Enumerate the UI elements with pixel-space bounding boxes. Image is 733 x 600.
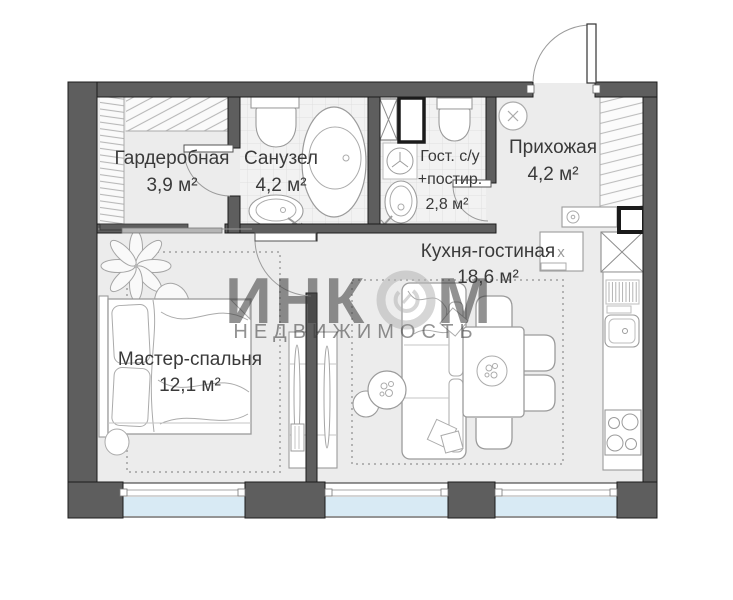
wall-bedroom-north (225, 224, 496, 233)
bathroom-label: Санузел (244, 148, 318, 169)
utility-shaft (399, 98, 424, 142)
dining-chair (524, 335, 555, 371)
stove (605, 410, 641, 455)
vent-shaft (380, 99, 397, 140)
hallway-closet-hatch (600, 97, 643, 207)
bathroom-area: 4,2 м² (255, 175, 306, 196)
entrance-door (527, 24, 600, 93)
entrance-threshold (533, 83, 595, 97)
wall-right (643, 97, 657, 518)
floor-plan: ИНК М НЕДВИЖИМОСТЬ Гардеробная 3,9 м² Са… (0, 0, 733, 600)
master-bedroom-area: 12,1 м² (159, 375, 221, 396)
hallway-cabinet (562, 207, 617, 227)
hallway-label: Прихожая (509, 137, 597, 158)
window-glass (97, 497, 643, 516)
wall-guestwc-hallway (486, 97, 496, 183)
window-pier (68, 482, 123, 518)
hallway-area: 4,2 м² (527, 164, 578, 185)
wall-bathroom-shaft (368, 97, 380, 224)
washing-machine (383, 143, 417, 179)
watermark: ИНК М НЕДВИЖИМОСТЬ (225, 264, 494, 343)
master-bedroom-label: Мастер-спальня (118, 349, 262, 370)
wall-top-left (68, 82, 533, 97)
wall-left (68, 82, 97, 518)
window-pier (448, 482, 495, 518)
wardrobe-label: Гардеробная (115, 148, 230, 169)
wall-wardrobe-bathroom-lower (228, 196, 240, 233)
dishwasher-detail (541, 263, 566, 270)
wardrobe-top-shelf-hatch (126, 97, 228, 131)
bedroom-tv-console (289, 332, 306, 468)
sofa-pillow (441, 431, 463, 453)
fridge (601, 232, 643, 272)
wardrobe-area: 3,9 м² (146, 175, 197, 196)
watermark-subtitle: НЕДВИЖИМОСТЬ (233, 321, 478, 343)
windows (68, 482, 657, 518)
bedroom-pouf (105, 429, 129, 455)
window-pier (245, 482, 325, 518)
wall-top-right (595, 82, 657, 97)
guest-wc-label-2: +постир. (418, 171, 483, 188)
guest-toilet (437, 98, 472, 141)
tv-unit (291, 424, 304, 451)
window-pier (617, 482, 657, 518)
living-console (317, 332, 337, 468)
table-centerpiece (477, 356, 507, 386)
dining-chair (476, 418, 512, 449)
kitchen-living-label: Кухня-гостиная (421, 241, 555, 262)
appliance-label: х (557, 244, 565, 261)
dining-chair (524, 375, 555, 411)
bed-headboard (99, 296, 108, 437)
guest-wc-area: 2,8 м² (425, 196, 469, 213)
wall-wardrobe-bathroom-upper (228, 97, 240, 148)
ceiling-light-icon (499, 102, 527, 130)
kitchen-living-area: 18,6 м² (457, 267, 519, 288)
hallway-shaft (619, 208, 644, 232)
guest-wc-label: Гост. с/у (420, 148, 479, 165)
bed-pillow-bottom (112, 367, 151, 427)
